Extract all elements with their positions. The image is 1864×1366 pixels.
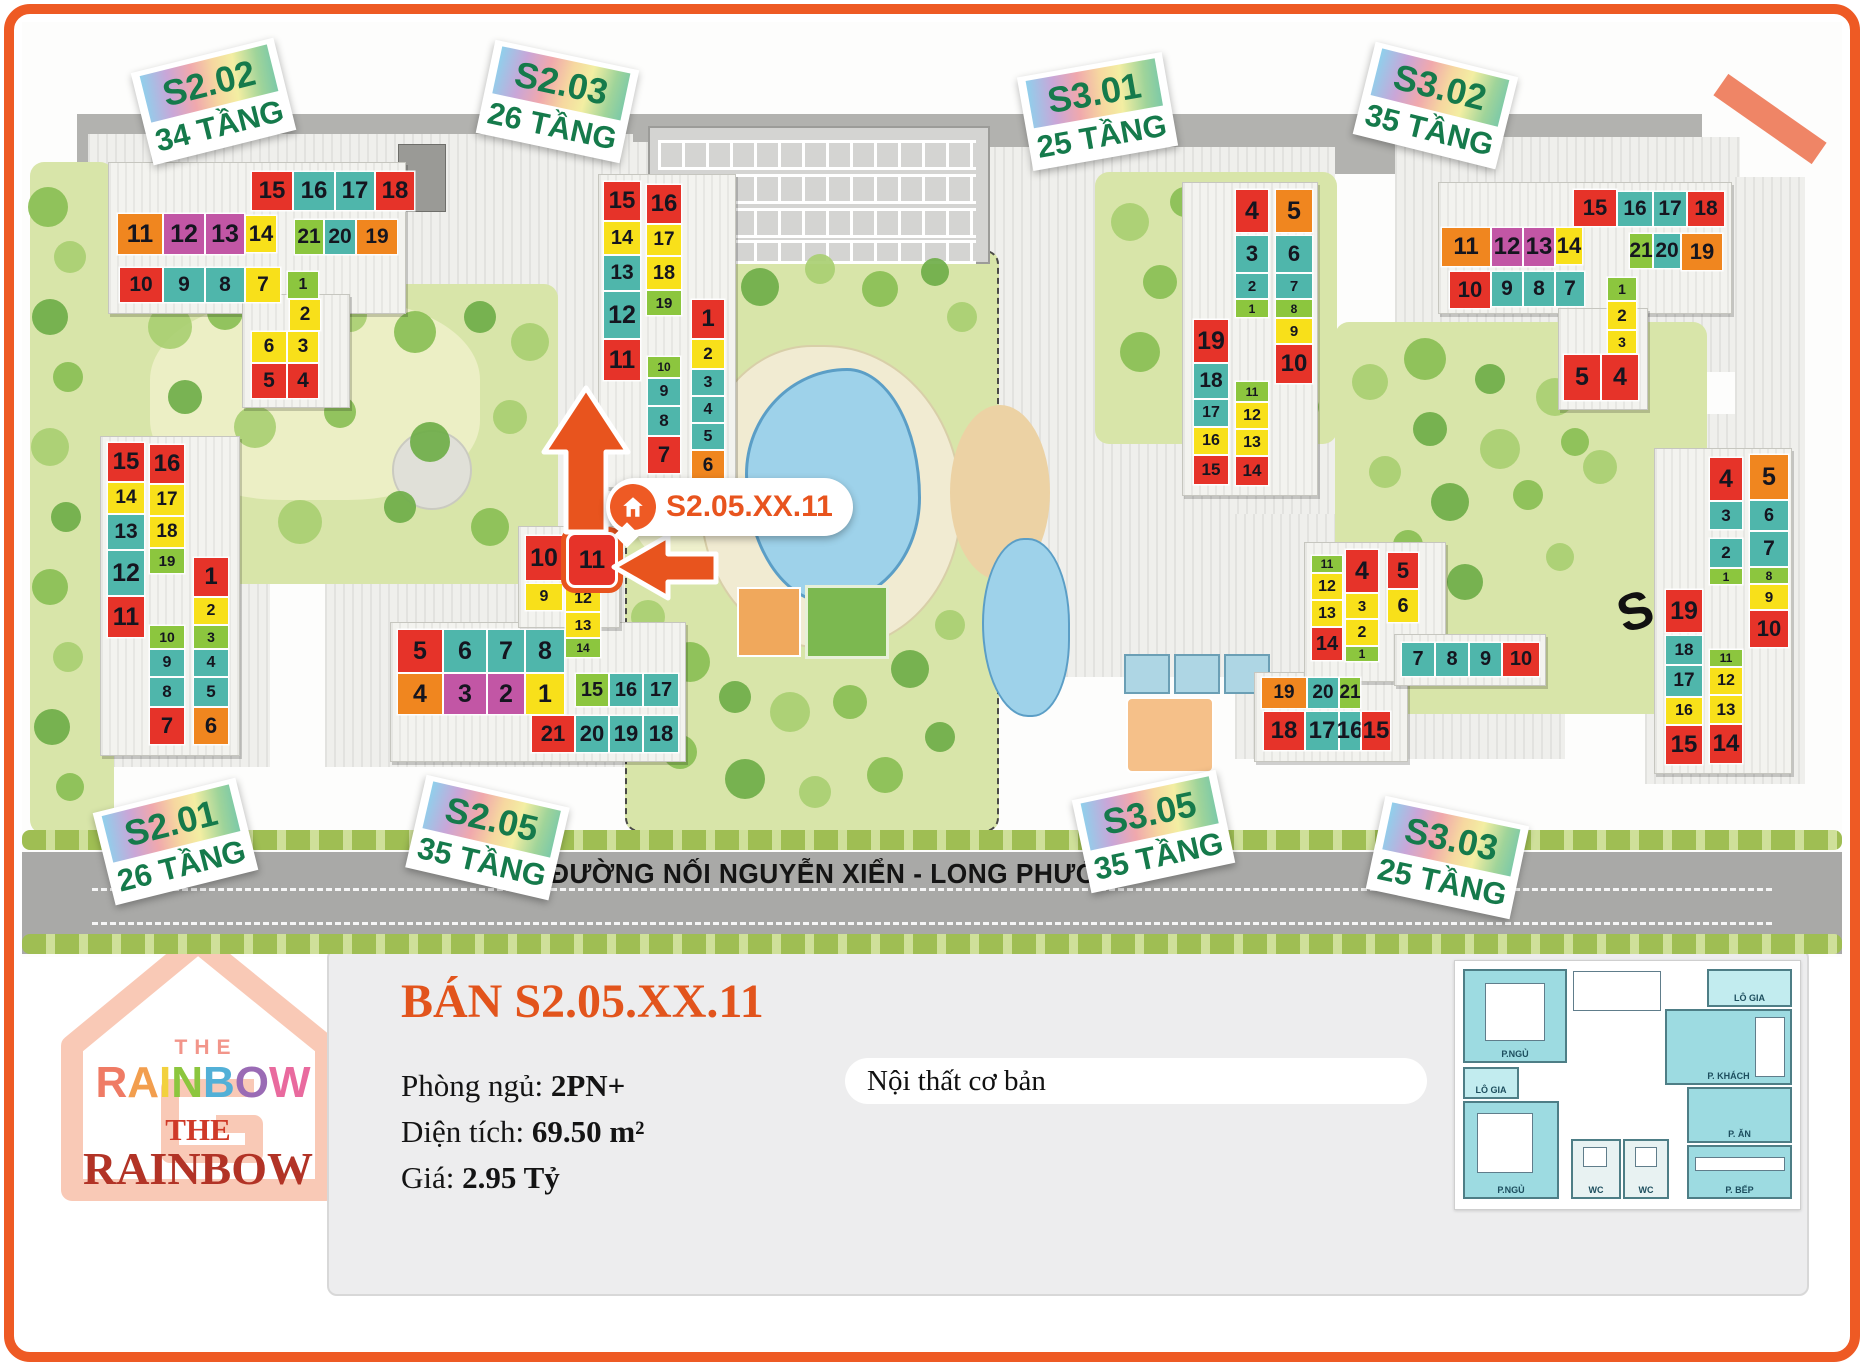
tennis-court — [805, 585, 889, 659]
tree — [1143, 265, 1177, 299]
unit-S3.01-17[interactable]: 17 — [1194, 400, 1228, 426]
unit-S3.05-18[interactable]: 18 — [1264, 712, 1304, 750]
unit-S2.05-10[interactable]: 10 — [526, 536, 562, 580]
tree — [862, 271, 898, 307]
tree — [464, 301, 496, 333]
unit-S3.02-17[interactable]: 17 — [1654, 192, 1686, 226]
unit-S2.03-12[interactable]: 12 — [604, 292, 640, 338]
unit-S3.05-20[interactable]: 20 — [1308, 678, 1338, 708]
logo-rainbow-colored: RAINBOW — [78, 1058, 328, 1108]
unit-S2.01-18[interactable]: 18 — [150, 517, 184, 547]
unit-S3.01-2[interactable]: 2 — [1236, 274, 1268, 298]
unit-S3.03-15[interactable]: 15 — [1666, 726, 1702, 764]
unit-S2.05-19[interactable]: 19 — [610, 716, 642, 752]
tree — [1546, 543, 1574, 571]
unit-S2.05-5[interactable]: 5 — [398, 630, 442, 672]
unit-S2.02-2[interactable]: 2 — [290, 300, 320, 330]
unit-S2.02-1[interactable]: 1 — [288, 272, 318, 298]
unit-S3.03-1[interactable]: 1 — [1710, 569, 1742, 584]
unit-S2.02-14[interactable]: 14 — [246, 216, 276, 252]
unit-S3.05-21[interactable]: 21 — [1340, 678, 1360, 708]
area-value: 69.50 m² — [532, 1114, 645, 1149]
unit-S2.01-2[interactable]: 2 — [194, 598, 228, 624]
unit-S3.02-12[interactable]: 12 — [1492, 228, 1522, 266]
unit-S3.01-14[interactable]: 14 — [1236, 457, 1268, 485]
tree — [719, 681, 751, 713]
unit-S2.01-8[interactable]: 8 — [150, 678, 184, 706]
tree — [1447, 564, 1483, 600]
unit-S2.01-4[interactable]: 4 — [194, 650, 228, 676]
unit-S2.03-1[interactable]: 1 — [692, 300, 724, 338]
unit-S2.05-8[interactable]: 8 — [526, 630, 564, 672]
unit-S3.01-13[interactable]: 13 — [1236, 430, 1268, 455]
unit-S2.02-5[interactable]: 5 — [252, 364, 286, 398]
unit-S3.02-16[interactable]: 16 — [1618, 192, 1652, 226]
unit-S2.01-15[interactable]: 15 — [108, 443, 144, 481]
floorplan-furniture — [1695, 1157, 1785, 1171]
annotation-label: S2.05.XX.11 — [666, 490, 833, 524]
unit-S3.02-11[interactable]: 11 — [1442, 228, 1490, 266]
unit-S3.03-8[interactable]: 8 — [1750, 568, 1788, 583]
unit-S2.05-15[interactable]: 15 — [576, 674, 608, 706]
unit-S2.01-9[interactable]: 9 — [150, 650, 184, 676]
note-input[interactable]: Nội thất cơ bản — [845, 1058, 1427, 1104]
tree — [168, 380, 202, 414]
unit-S3.01-15[interactable]: 15 — [1194, 456, 1228, 484]
unit-S3.05-4[interactable]: 4 — [1346, 550, 1378, 592]
unit-S2.01-7[interactable]: 7 — [150, 708, 184, 744]
unit-S2.02-20[interactable]: 20 — [325, 220, 355, 254]
unit-S2.03-2[interactable]: 2 — [692, 340, 724, 368]
tree — [947, 302, 977, 332]
floorplan-room: P. BẾP — [1687, 1145, 1792, 1199]
unit-S2.01-17[interactable]: 17 — [150, 485, 184, 515]
unit-S3.05-15[interactable]: 15 — [1362, 712, 1390, 750]
unit-S3.02-7[interactable]: 7 — [1556, 272, 1584, 306]
tree — [384, 491, 416, 523]
unit-S2.05-17[interactable]: 17 — [644, 674, 678, 706]
lane-line — [92, 922, 1772, 925]
unit-S3.01-6[interactable]: 6 — [1276, 236, 1312, 272]
unit-S3.05-7[interactable]: 7 — [1402, 643, 1434, 676]
unit-S2.05-13[interactable]: 13 — [566, 613, 600, 637]
logo-letter: N — [171, 1058, 203, 1107]
floorplan-room: LÔ GIA — [1707, 969, 1792, 1007]
logo-rainbow: RAINBOW — [58, 1142, 338, 1195]
tree — [1480, 429, 1520, 469]
site-map: 1516171811121314212019109871263541514131… — [22, 22, 1842, 957]
sports-court — [737, 587, 801, 657]
tree — [925, 722, 955, 752]
unit-S2.02-12[interactable]: 12 — [164, 214, 204, 254]
unit-S3.05-14[interactable]: 14 — [1312, 628, 1342, 660]
floorplan-room: LÔ GIA — [1463, 1067, 1519, 1099]
unit-S2.05-4[interactable]: 4 — [398, 674, 442, 714]
unit-S2.02-15[interactable]: 15 — [252, 172, 292, 210]
page: 1516171811121314212019109871263541514131… — [0, 0, 1864, 1366]
tree — [1369, 456, 1401, 488]
tree — [34, 709, 70, 745]
unit-S3.01-12[interactable]: 12 — [1236, 403, 1268, 428]
tree — [56, 773, 84, 801]
unit-S3.03-7[interactable]: 7 — [1750, 532, 1788, 566]
tree — [53, 642, 83, 672]
unit-S3.02-1[interactable]: 1 — [1608, 278, 1636, 300]
unit-S3.01-3[interactable]: 3 — [1236, 236, 1268, 272]
unit-S2.05-7[interactable]: 7 — [488, 630, 524, 672]
unit-S2.03-15[interactable]: 15 — [604, 182, 640, 220]
tree — [833, 685, 867, 719]
unit-S2.05-9[interactable]: 9 — [526, 584, 562, 610]
tree — [234, 406, 276, 448]
unit-S2.03-11[interactable]: 11 — [604, 340, 640, 380]
unit-S2.02-6[interactable]: 6 — [252, 332, 286, 362]
unit-S3.05-19[interactable]: 19 — [1262, 678, 1306, 708]
unit-S3.02-14[interactable]: 14 — [1556, 228, 1582, 264]
tree — [471, 508, 509, 546]
tree — [32, 569, 68, 605]
unit-S2.03-9[interactable]: 9 — [648, 379, 680, 405]
unit-S3.03-12[interactable]: 12 — [1710, 668, 1742, 694]
tree — [511, 323, 549, 361]
price-label: Giá: — [401, 1160, 462, 1195]
unit-S3.02-8[interactable]: 8 — [1524, 272, 1554, 306]
unit-S3.05-12[interactable]: 12 — [1312, 574, 1342, 599]
unit-S3.01-8[interactable]: 8 — [1276, 300, 1312, 317]
unit-S3.02-2[interactable]: 2 — [1608, 302, 1636, 329]
unit-S3.01-11[interactable]: 11 — [1236, 382, 1268, 401]
floorplan-furniture — [1755, 1017, 1785, 1077]
tree — [1475, 364, 1505, 394]
unit-S3.05-11[interactable]: 11 — [1312, 556, 1342, 572]
unit-S2.01-16[interactable]: 16 — [150, 445, 184, 483]
unit-S2.03-7[interactable]: 7 — [648, 437, 680, 473]
unit-S3.01-19[interactable]: 19 — [1194, 320, 1228, 362]
tree — [1111, 203, 1149, 241]
tree — [1583, 450, 1617, 484]
logo-letter: O — [235, 1058, 269, 1107]
unit-S3.01-16[interactable]: 16 — [1194, 428, 1228, 454]
unit-S3.01-5[interactable]: 5 — [1276, 190, 1312, 232]
bedrooms-value: 2PN+ — [551, 1068, 626, 1103]
unit-S3.03-2[interactable]: 2 — [1710, 539, 1742, 567]
tree — [1513, 480, 1543, 510]
unit-S3.02-9[interactable]: 9 — [1492, 272, 1522, 306]
unit-S2.03-17[interactable]: 17 — [647, 225, 681, 255]
tree — [805, 254, 835, 284]
unit-S2.03-5[interactable]: 5 — [692, 424, 724, 449]
unit-S2.02-13[interactable]: 13 — [206, 214, 244, 254]
bedrooms-field: Phòng ngủ: 2PN+ — [401, 1068, 625, 1104]
logo-letter: B — [203, 1058, 235, 1107]
tree — [54, 241, 86, 273]
unit-S3.02-13[interactable]: 13 — [1524, 228, 1554, 266]
tree — [31, 428, 69, 466]
unit-S2.05-3[interactable]: 3 — [444, 674, 486, 714]
unit-S3.05-2[interactable]: 2 — [1346, 620, 1378, 645]
unit-S2.05-12[interactable]: 12 — [566, 586, 600, 611]
area-label: Diện tích: — [401, 1114, 532, 1149]
logo-letter: R — [95, 1058, 127, 1107]
tree — [741, 268, 779, 306]
unit-S2.03-10[interactable]: 10 — [648, 357, 680, 377]
tree — [1561, 428, 1589, 456]
tree — [935, 610, 965, 640]
unit-S3.03-14[interactable]: 14 — [1710, 725, 1742, 763]
unit-S2.05-14[interactable]: 14 — [566, 639, 600, 657]
unit-S2.03-16[interactable]: 16 — [647, 185, 681, 223]
tree — [867, 757, 903, 793]
unit-S2.01-6[interactable]: 6 — [194, 708, 228, 744]
home-icon — [610, 484, 656, 530]
unit-S3.01-1[interactable]: 1 — [1236, 300, 1268, 317]
unit-S3.03-6[interactable]: 6 — [1750, 501, 1788, 530]
unit-S2.05-2[interactable]: 2 — [488, 674, 524, 714]
pavilion — [1174, 654, 1220, 694]
tree — [1413, 412, 1447, 446]
unit-S3.05-1[interactable]: 1 — [1346, 647, 1378, 661]
bedrooms-label: Phòng ngủ: — [401, 1068, 551, 1103]
unit-S2.03-8[interactable]: 8 — [648, 407, 680, 435]
unit-S3.02-5[interactable]: 5 — [1564, 355, 1600, 400]
unit-S3.05-13[interactable]: 13 — [1312, 601, 1342, 626]
unit-S3.02-20[interactable]: 20 — [1654, 234, 1680, 268]
tree — [53, 362, 83, 392]
unit-S2.05-18[interactable]: 18 — [644, 716, 678, 752]
unit-S2.02-19[interactable]: 19 — [357, 220, 397, 254]
tree — [1431, 483, 1469, 521]
logo-letter: W — [269, 1058, 311, 1107]
floorplan-room: P. ĂN — [1687, 1087, 1792, 1143]
tree — [799, 776, 831, 808]
unit-S2.01-11[interactable]: 11 — [108, 597, 144, 637]
unit-S3.01-9[interactable]: 9 — [1276, 319, 1312, 343]
unit-S2.02-16[interactable]: 16 — [294, 172, 334, 210]
unit-S3.03-13[interactable]: 13 — [1710, 696, 1742, 723]
unit-S3.05-17[interactable]: 17 — [1306, 712, 1338, 750]
unit-S2.01-3[interactable]: 3 — [194, 626, 228, 648]
unit-S2.01-14[interactable]: 14 — [108, 483, 144, 513]
unit-S3.05-8[interactable]: 8 — [1436, 643, 1468, 676]
tree — [278, 500, 322, 544]
tree — [51, 502, 81, 532]
hedge-strip — [22, 934, 1842, 954]
unit-S2.02-11[interactable]: 11 — [118, 214, 162, 254]
unit-S2.05-20[interactable]: 20 — [576, 716, 608, 752]
tree — [891, 650, 929, 688]
unit-S3.03-5[interactable]: 5 — [1750, 455, 1788, 499]
unit-S2.01-19[interactable]: 19 — [150, 549, 184, 573]
price-value: 2.95 Tỷ — [462, 1160, 560, 1195]
floorplan-furniture — [1573, 971, 1661, 1011]
floorplan-furniture — [1635, 1147, 1657, 1167]
unit-S2.02-7[interactable]: 7 — [246, 268, 280, 302]
unit-S2.01-12[interactable]: 12 — [108, 551, 144, 595]
second-pool — [982, 538, 1070, 717]
tree — [921, 258, 949, 286]
unit-S2.02-3[interactable]: 3 — [288, 332, 318, 362]
unit-S2.05-1[interactable]: 1 — [526, 674, 564, 714]
basketball-court — [1126, 697, 1214, 773]
parking-row — [658, 140, 976, 170]
unit-S3.05-9[interactable]: 9 — [1470, 643, 1501, 676]
unit-S3.05-3[interactable]: 3 — [1346, 594, 1378, 618]
unit-S3.03-10[interactable]: 10 — [1750, 611, 1788, 647]
unit-S2.05-16[interactable]: 16 — [610, 674, 642, 706]
tree — [770, 692, 810, 732]
unit-S3.05-6[interactable]: 6 — [1388, 590, 1418, 622]
tree — [32, 299, 68, 335]
unit-S3.03-4[interactable]: 4 — [1710, 458, 1742, 500]
tree — [1352, 364, 1388, 400]
unit-S2.03-4[interactable]: 4 — [692, 397, 724, 422]
unit-S2.03-19[interactable]: 19 — [647, 291, 681, 315]
rainbow-logo: THE RAINBOW THE RAINBOW — [58, 928, 338, 1258]
price-field: Giá: 2.95 Tỷ — [401, 1160, 560, 1196]
listing-title: BÁN S2.05.XX.11 — [401, 974, 764, 1029]
tree — [28, 187, 68, 227]
floorplan-image: P.NGỦLÔ GIAP. KHÁCHLÔ GIAP.NGỦP. ĂNP. BẾ… — [1454, 960, 1801, 1210]
unit-S3.05-16[interactable]: 16 — [1340, 712, 1360, 750]
unit-S3.01-7[interactable]: 7 — [1276, 274, 1312, 298]
unit-S2.03-14[interactable]: 14 — [604, 222, 640, 254]
tree — [725, 759, 765, 799]
unit-S3.03-19[interactable]: 19 — [1666, 590, 1702, 632]
unit-S3.01-18[interactable]: 18 — [1194, 364, 1228, 398]
unit-S3.03-11[interactable]: 11 — [1710, 650, 1742, 666]
unit-S2.02-18[interactable]: 18 — [376, 172, 414, 210]
tree — [493, 400, 527, 434]
unit-annotation: S2.05.XX.11 — [606, 478, 853, 536]
tree — [394, 311, 436, 353]
unit-S2.03-3[interactable]: 3 — [692, 370, 724, 395]
unit-S3.05-10[interactable]: 10 — [1503, 643, 1539, 676]
unit-S2.02-9[interactable]: 9 — [164, 268, 204, 302]
tree — [1404, 338, 1446, 380]
unit-S2.03-6[interactable]: 6 — [692, 451, 724, 481]
unit-S2.02-10[interactable]: 10 — [120, 268, 162, 302]
unit-S3.03-9[interactable]: 9 — [1750, 585, 1788, 609]
unit-S3.03-16[interactable]: 16 — [1666, 698, 1702, 724]
unit-S2.05-21[interactable]: 21 — [532, 716, 574, 752]
area-field: Diện tích: 69.50 m² — [401, 1114, 644, 1150]
unit-S2.03-18[interactable]: 18 — [647, 257, 681, 289]
unit-S3.02-21[interactable]: 21 — [1630, 234, 1652, 268]
unit-S2.05-11[interactable]: 11 — [566, 532, 618, 588]
unit-S3.01-4[interactable]: 4 — [1236, 190, 1268, 232]
unit-S2.02-21[interactable]: 21 — [295, 220, 323, 254]
unit-S3.02-3[interactable]: 3 — [1608, 331, 1636, 353]
unit-S3.01-10[interactable]: 10 — [1276, 345, 1312, 383]
unit-S3.02-10[interactable]: 10 — [1450, 272, 1490, 308]
unit-S2.02-4[interactable]: 4 — [288, 364, 318, 398]
tree — [410, 422, 450, 462]
unit-S2.03-13[interactable]: 13 — [604, 256, 640, 290]
hedge-strip — [22, 830, 1842, 850]
floorplan-furniture — [1477, 1113, 1533, 1173]
unit-S3.02-19[interactable]: 19 — [1682, 234, 1722, 270]
unit-S3.02-18[interactable]: 18 — [1688, 192, 1724, 226]
floorplan-furniture — [1485, 983, 1545, 1041]
unit-S2.02-17[interactable]: 17 — [336, 172, 374, 210]
unit-S2.02-8[interactable]: 8 — [206, 268, 244, 302]
unit-S2.01-13[interactable]: 13 — [108, 515, 144, 549]
logo-letter: I — [159, 1058, 171, 1107]
unit-S3.02-4[interactable]: 4 — [1602, 355, 1638, 400]
unit-S3.02-15[interactable]: 15 — [1574, 190, 1616, 226]
listing-panel: BÁN S2.05.XX.11 Phòng ngủ: 2PN+ Diện tíc… — [327, 948, 1809, 1296]
road-label: ĐƯỜNG NỐI NGUYỄN XIỂN - LONG PHƯỚC — [550, 858, 1118, 890]
logo-the-top: THE — [146, 1036, 266, 1060]
unit-S3.03-18[interactable]: 18 — [1666, 636, 1702, 664]
unit-S2.01-10[interactable]: 10 — [150, 626, 184, 648]
unit-S3.03-17[interactable]: 17 — [1666, 666, 1702, 696]
floorplan-furniture — [1583, 1147, 1607, 1167]
tree — [1120, 332, 1160, 372]
unit-S2.01-5[interactable]: 5 — [194, 678, 228, 706]
unit-S2.01-1[interactable]: 1 — [194, 558, 228, 596]
unit-S2.05-6[interactable]: 6 — [444, 630, 486, 672]
logo-letter: A — [127, 1058, 159, 1107]
unit-S3.05-5[interactable]: 5 — [1388, 553, 1418, 588]
unit-S3.03-3[interactable]: 3 — [1710, 502, 1742, 529]
pavilion — [1124, 654, 1170, 694]
